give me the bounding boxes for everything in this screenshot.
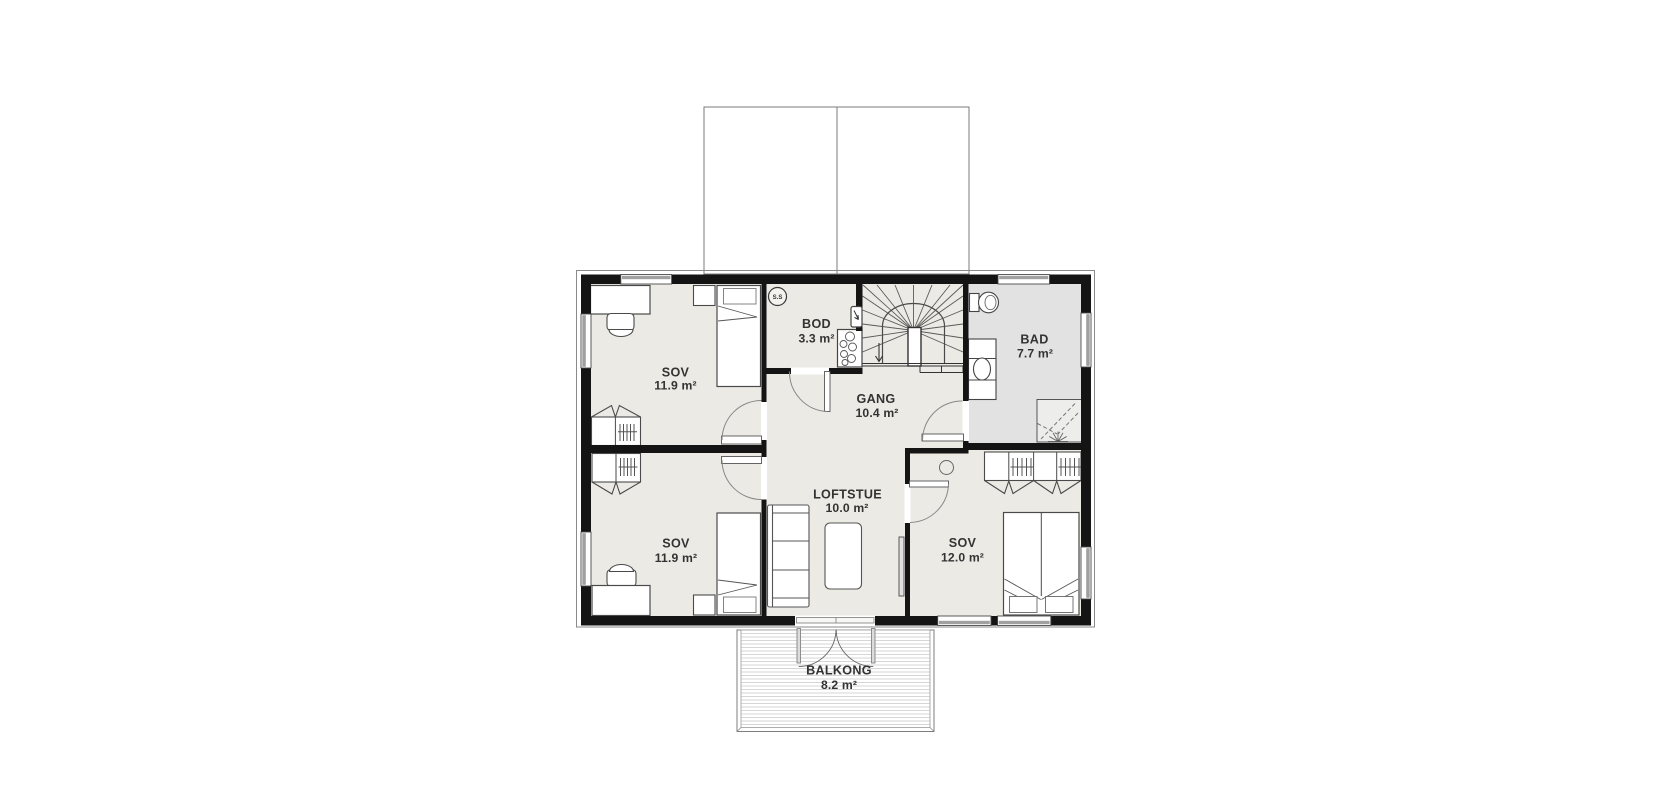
svg-text:BALKONG: BALKONG — [806, 664, 872, 678]
svg-text:GANG: GANG — [857, 392, 896, 406]
svg-text:SOV: SOV — [662, 366, 690, 380]
svg-text:7.7 m²: 7.7 m² — [1017, 347, 1053, 361]
svg-text:BOD: BOD — [802, 317, 831, 331]
svg-text:SOV: SOV — [662, 537, 690, 551]
svg-text:BAD: BAD — [1020, 333, 1048, 347]
svg-text:11.9 m²: 11.9 m² — [654, 379, 696, 393]
svg-text:SOV: SOV — [949, 536, 977, 550]
svg-text:S.S: S.S — [773, 295, 783, 301]
svg-text:12.0 m²: 12.0 m² — [941, 551, 984, 565]
svg-text:LOFTSTUE: LOFTSTUE — [813, 488, 882, 502]
svg-text:3.3 m²: 3.3 m² — [798, 332, 834, 346]
svg-text:8.2 m²: 8.2 m² — [821, 678, 857, 692]
svg-text:11.9 m²: 11.9 m² — [655, 551, 697, 565]
svg-text:10.4 m²: 10.4 m² — [855, 406, 898, 420]
svg-text:10.0 m²: 10.0 m² — [825, 501, 868, 515]
